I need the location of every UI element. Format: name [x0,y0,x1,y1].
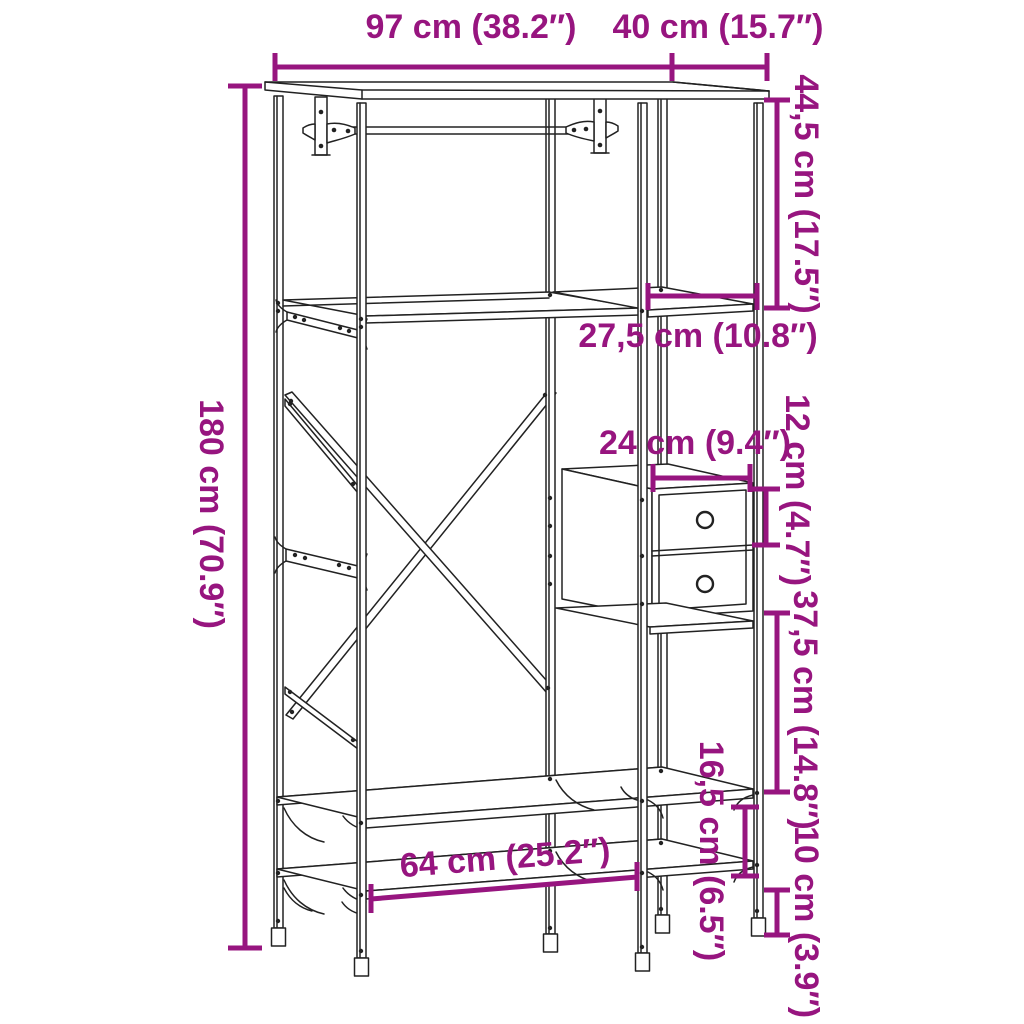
dimension-label-shelf-gap: 16,5 cm (6.5″) [694,741,728,961]
dimension-label-shelf-width: 27,5 cm (10.8″) [578,319,817,353]
dimension-label-upper-right-height: 44,5 cm (17.5″) [789,74,823,313]
top-board [265,82,769,99]
rail-bracket-right [566,97,618,153]
diagram-canvas: 97 cm (38.2″) 40 cm (15.7″) 44,5 cm (17.… [0,0,1024,1024]
dimension-label-drawer-width: 24 cm (9.4″) [599,426,791,460]
rail-bracket-left [303,97,355,155]
drawer-unit [562,464,753,617]
dimension-label-drawer-height: 12 cm (4.7″) [780,394,814,586]
dimension-label-top-depth: 40 cm (15.7″) [613,10,824,44]
dimension-label-lower-right-height: 37,5 cm (14.8″) [788,590,822,829]
dimension-label-top-width: 97 cm (38.2″) [366,10,577,44]
dimension-line-top-depth [672,53,767,81]
dimension-line-top-width [275,53,672,81]
dimension-line-total-height [228,86,262,948]
dimension-label-ground-clearance: 10 cm (3.9″) [789,826,823,1018]
cross-brace [285,390,556,719]
bench-top-shelf [277,767,753,828]
dimension-label-total-height: 180 cm (70.9″) [194,399,228,629]
